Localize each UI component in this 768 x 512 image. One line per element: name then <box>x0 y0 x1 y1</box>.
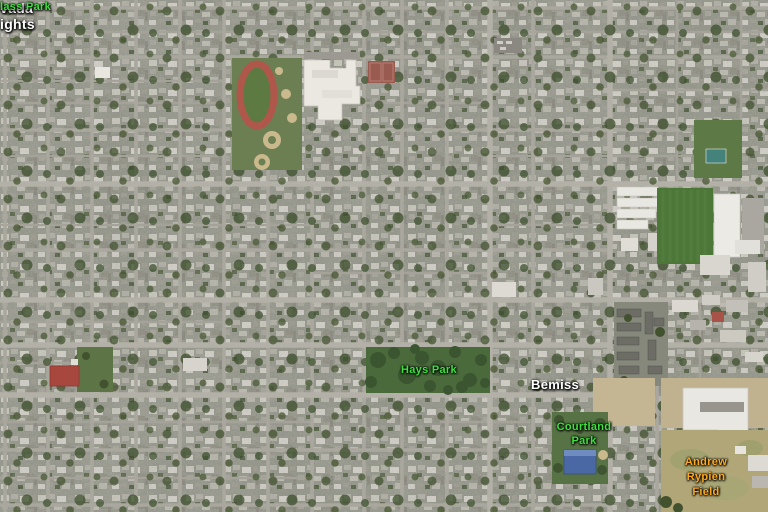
label-line: Andrew <box>677 455 735 470</box>
satellite-map-canvas[interactable]: vada ights lass Park Hays Park Bemiss Co… <box>0 0 768 512</box>
apartment-complex <box>614 302 668 386</box>
map-label-lass-park: lass Park <box>0 0 51 14</box>
map-label-hays-park: Hays Park <box>401 363 457 377</box>
map-label-courtland-park: Courtland Park <box>551 420 617 448</box>
map-label-andrew-rypien-field: Andrew Rypien Field <box>677 455 735 500</box>
tennis-courts <box>368 61 395 83</box>
map-label-bemiss: Bemiss <box>531 378 579 392</box>
label-line: Field <box>677 485 735 500</box>
satellite-imagery <box>0 0 768 512</box>
school-track-and-fields <box>232 58 302 170</box>
label-line: Park <box>551 434 617 448</box>
label-line: Hays Park <box>401 363 457 377</box>
label-line: ights <box>0 16 35 32</box>
label-line: Bemiss <box>531 378 579 392</box>
label-line: Rypien <box>677 470 735 485</box>
label-line: Courtland <box>551 420 617 434</box>
label-line: lass Park <box>0 0 51 14</box>
